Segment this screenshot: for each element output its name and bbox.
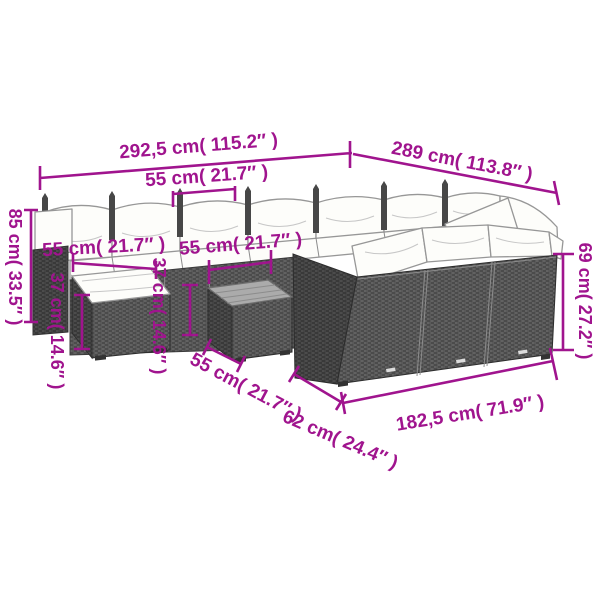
diagram-canvas: 292,5 cm( 115.2″ ) 289 cm( 113.8″ ) 55 c… (0, 0, 600, 600)
stool-height-label: 37 cm( 14.6″ ) (47, 273, 67, 390)
total-width-label: 292,5 cm( 115.2″ ) (118, 130, 278, 164)
sofa-set-illustration (33, 179, 563, 387)
corner-depth-label: 62 cm( 24.4″ ) (279, 406, 401, 473)
dimension-side-height: 69 cm( 27.2″ ) (553, 243, 595, 360)
seat-width-top-label: 55 cm( 21.7″ ) (144, 162, 268, 192)
total-depth-label: 289 cm( 113.8″ ) (390, 138, 535, 186)
back-height-label: 85 cm( 33.5″ ) (5, 209, 25, 326)
front-length-label: 182,5 cm( 71.9″ ) (395, 391, 546, 435)
side-height-label: 69 cm( 27.2″ ) (575, 243, 595, 360)
coffee-table (208, 280, 292, 363)
table-height-label: 37 cm( 14.6″ ) (149, 258, 169, 375)
product-dimension-diagram: 292,5 cm( 115.2″ ) 289 cm( 113.8″ ) 55 c… (0, 0, 600, 600)
